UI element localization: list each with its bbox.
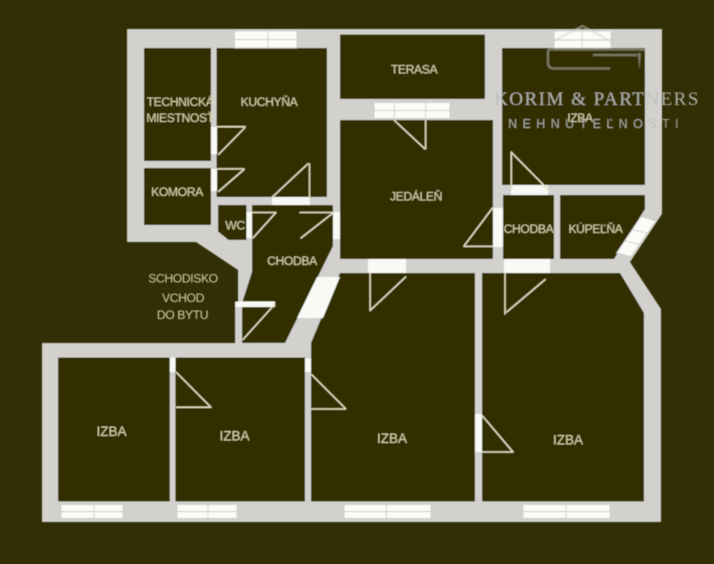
svg-text:MIESTNOSŤ: MIESTNOSŤ — [146, 110, 214, 125]
svg-text:NEHNUTEĽNOSTI: NEHNUTEĽNOSTI — [508, 117, 684, 131]
svg-text:KOMORA: KOMORA — [151, 185, 204, 199]
svg-text:CHODBA: CHODBA — [504, 222, 555, 236]
svg-text:DO BYTU: DO BYTU — [157, 308, 208, 322]
svg-text:KUCHYŇA: KUCHYŇA — [241, 94, 299, 109]
svg-text:TECHNICKÁ: TECHNICKÁ — [147, 94, 215, 109]
svg-text:IZBA: IZBA — [377, 431, 407, 446]
svg-text:IZBA: IZBA — [553, 433, 583, 448]
svg-text:IZBA: IZBA — [96, 424, 126, 439]
svg-text:IZBA: IZBA — [219, 429, 249, 444]
svg-text:KORIM & PARTNERS: KORIM & PARTNERS — [494, 89, 700, 110]
svg-text:WC: WC — [225, 219, 245, 233]
svg-text:VCHOD: VCHOD — [162, 291, 205, 305]
svg-text:JEDÁLEŇ: JEDÁLEŇ — [390, 189, 442, 204]
svg-text:TERASA: TERASA — [391, 63, 439, 77]
svg-text:CHODBA: CHODBA — [267, 254, 318, 268]
svg-text:SCHODISKO: SCHODISKO — [148, 272, 218, 286]
svg-text:KÚPEĽŇA: KÚPEĽŇA — [568, 221, 623, 236]
